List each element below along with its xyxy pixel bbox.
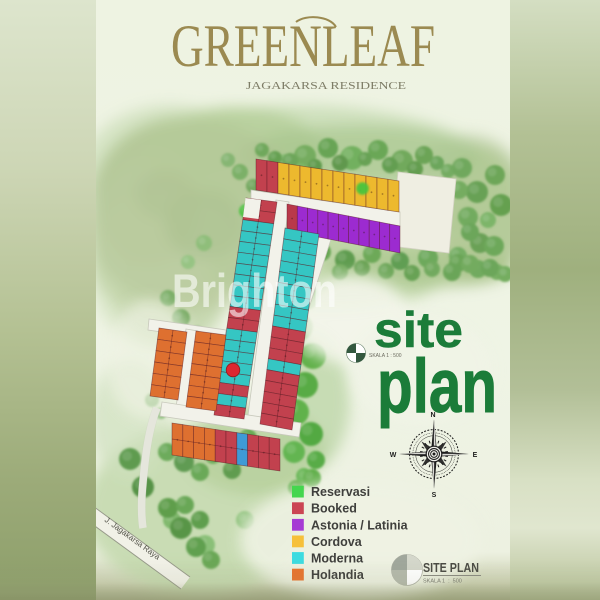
svg-text:SKALA 1 : 500: SKALA 1 : 500 xyxy=(369,353,402,359)
svg-text:W: W xyxy=(390,452,397,459)
svg-text:N: N xyxy=(430,412,435,419)
svg-text:E: E xyxy=(473,452,478,459)
svg-text:Cordova: Cordova xyxy=(311,535,363,549)
svg-text:Astonia / Latinia: Astonia / Latinia xyxy=(311,518,409,532)
svg-text:Booked: Booked xyxy=(311,502,357,516)
svg-text:Brighton: Brighton xyxy=(172,264,337,317)
svg-text:Reservasi: Reservasi xyxy=(311,485,370,499)
svg-text:S: S xyxy=(432,492,437,499)
svg-text:GREENLEAF: GREENLEAF xyxy=(171,13,435,79)
svg-text:JAGAKARSA RESIDENCE: JAGAKARSA RESIDENCE xyxy=(246,80,406,92)
